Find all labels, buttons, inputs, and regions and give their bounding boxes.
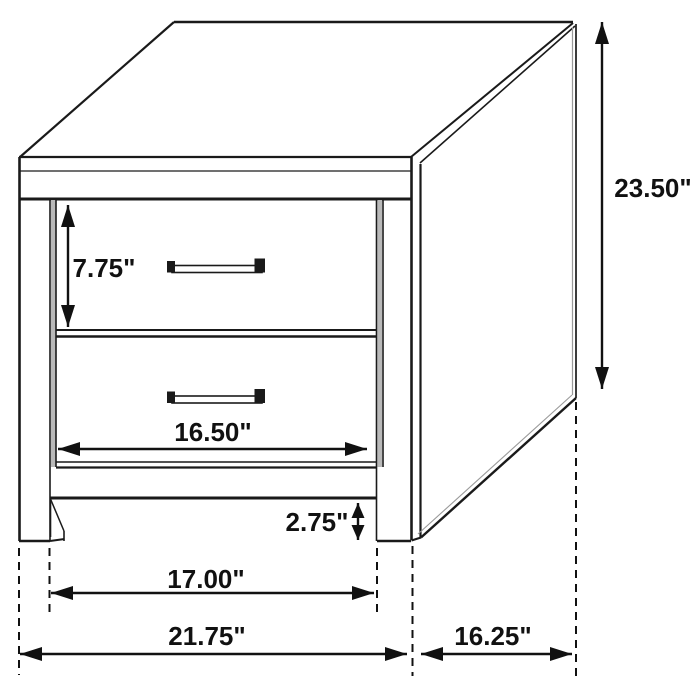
left-stile-shading [51,200,56,467]
between-legs-width-label: 17.00" [167,564,244,594]
nightstand-drawing-svg: 7.75" 23.50" 16.50" 2.75" 17.00" 21.75" … [0,0,700,700]
handle-bar [172,266,262,273]
dimension-overall-depth: 16.25" [421,621,572,654]
handle-bar [172,396,262,403]
handle-right-lug [255,259,266,273]
front-frame [20,157,421,541]
top-left-edge [20,22,174,157]
drawer-width-label: 16.50" [174,417,251,447]
handle-right-lug [255,389,266,403]
bottom-rail-and-legs [19,468,421,542]
dimension-overall-width: 21.75" [20,621,407,654]
side-panel [418,24,576,538]
overall-depth-label: 16.25" [454,621,531,651]
overall-height-label: 23.50" [614,173,691,203]
dimension-drawer-width: 16.50" [58,417,367,449]
bottom-drawer-handle [167,389,265,403]
foot-clearance-label: 2.75" [286,507,349,537]
table-top [20,22,575,163]
furniture-dimension-diagram: 7.75" 23.50" 16.50" 2.75" 17.00" 21.75" … [0,0,700,700]
drawer-height-label: 7.75" [73,253,136,283]
dimension-drawer-height: 7.75" [68,205,135,327]
top-right-edge-inner [420,26,575,163]
handle-left-lug [167,261,175,273]
right-leg-side-bottom-edge [412,538,422,541]
overall-width-label: 21.75" [168,621,245,651]
front-top-rail [19,157,411,199]
side-panel-slope-highlight [418,395,572,534]
left-leg-inner-face-edge [51,499,65,531]
handle-left-lug [167,392,175,404]
top-right-edge-outer [411,23,573,157]
left-leg-inner-bottom-edge [50,539,65,541]
dimension-overall-height: 23.50" [602,22,692,389]
dimension-between-legs-width: 17.00" [51,564,374,594]
side-panel-bottom-slope-edge [421,398,576,538]
dimension-foot-clearance: 2.75" [286,503,358,540]
top-drawer-handle [167,259,265,273]
right-stile-shading [378,200,383,467]
dimension-annotations: 7.75" 23.50" 16.50" 2.75" 17.00" 21.75" … [20,22,692,654]
